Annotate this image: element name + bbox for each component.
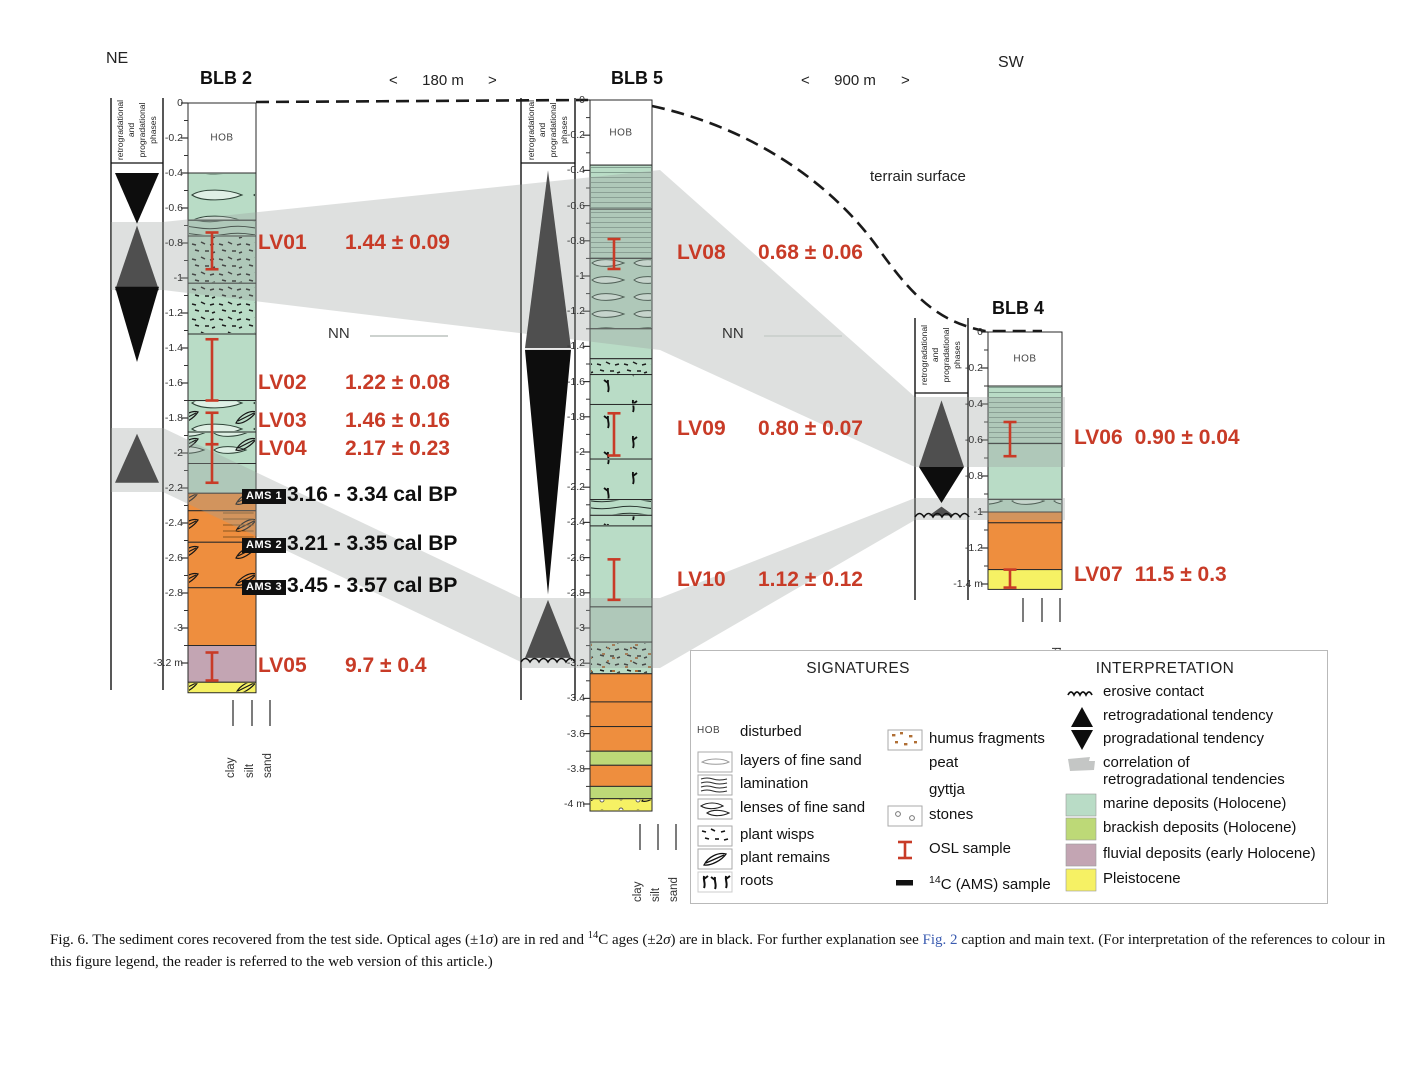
sample-age: 1.22 ± 0.08 bbox=[345, 371, 450, 395]
depth-tick-label: -3.6 bbox=[567, 728, 585, 740]
swatch-pleistocene-icon bbox=[1064, 868, 1100, 892]
signature-label: plant wisps bbox=[740, 826, 814, 843]
phase-axis-title: retrogradationalandprogradationalphases bbox=[917, 318, 965, 392]
signature-label: gyttja bbox=[929, 781, 965, 798]
core-title-BLB2: BLB 2 bbox=[200, 68, 252, 89]
depth-tick-label: -1.8 bbox=[567, 411, 585, 423]
depth-tick-label: -2.8 bbox=[567, 587, 585, 599]
osl-sample-label-LV06: LV060.90 ± 0.04 bbox=[1074, 426, 1240, 450]
osl-sample-label-LV01: LV011.44 ± 0.09 bbox=[258, 231, 450, 255]
depth-tick-label: -0.6 bbox=[165, 202, 183, 214]
wisps-icon bbox=[697, 824, 733, 848]
interpretation-label: fluvial deposits (early Holocene) bbox=[1103, 845, 1316, 862]
depth-tick-label: -0.8 bbox=[965, 470, 983, 482]
caption-text: ) are in red and bbox=[493, 932, 588, 948]
sample-id: LV04 bbox=[258, 437, 345, 461]
distance-label: 900 m bbox=[834, 72, 876, 89]
depth-tick-label: -2.6 bbox=[567, 552, 585, 564]
signature-label: layers of fine sand bbox=[740, 752, 862, 769]
distance-label: 180 m bbox=[422, 72, 464, 89]
depth-tick-label: -3.2 bbox=[567, 657, 585, 669]
depth-tick-label: -1.4 m bbox=[953, 578, 983, 590]
phase-axis-word: phases bbox=[952, 341, 963, 369]
osl-icon bbox=[887, 838, 923, 862]
nn-datum-line bbox=[764, 335, 842, 337]
sample-id: LV09 bbox=[677, 417, 758, 441]
depth-tick-label: -1.6 bbox=[567, 376, 585, 388]
phase-axis-word: phases bbox=[148, 116, 159, 144]
layers-fine-sand-icon bbox=[697, 750, 733, 774]
osl-sample-label-LV08: LV080.68 ± 0.06 bbox=[677, 241, 863, 265]
signature-label: lenses of fine sand bbox=[740, 799, 865, 816]
peat-icon bbox=[887, 752, 923, 776]
grain-label-sand: sand bbox=[262, 736, 274, 778]
ams-sample-age: 3.45 - 3.57 cal BP bbox=[287, 574, 457, 598]
signature-label: lamination bbox=[740, 775, 808, 792]
osl-sample-label-LV02: LV021.22 ± 0.08 bbox=[258, 371, 450, 395]
ams-sample-badge: AMS 3 bbox=[242, 580, 286, 595]
lamination-icon bbox=[697, 773, 733, 797]
swatch-marine-icon bbox=[1064, 793, 1100, 817]
depth-tick-label: -2.4 bbox=[567, 516, 585, 528]
roots-icon bbox=[697, 870, 733, 894]
depth-tick-label: -2 bbox=[174, 447, 183, 459]
sample-age: 0.90 ± 0.04 bbox=[1135, 426, 1240, 450]
depth-tick-label: -1.2 bbox=[965, 542, 983, 554]
interpretation-label: retrogradational tendency bbox=[1103, 707, 1273, 724]
osl-sample-label-LV03: LV031.46 ± 0.16 bbox=[258, 409, 450, 433]
depth-tick-label: -3.2 m bbox=[153, 657, 183, 669]
depth-tick-label: -1 bbox=[576, 270, 585, 282]
grain-label-silt: silt bbox=[650, 860, 662, 902]
sample-age: 2.17 ± 0.23 bbox=[345, 437, 450, 461]
interpretation-label: erosive contact bbox=[1103, 683, 1204, 700]
stones-icon bbox=[887, 804, 923, 828]
depth-tick-label: -2 bbox=[576, 446, 585, 458]
sample-id: LV05 bbox=[258, 654, 345, 678]
osl-sample-label-LV05: LV059.7 ± 0.4 bbox=[258, 654, 427, 678]
figure-caption: Fig. 6. The sediment cores recovered fro… bbox=[50, 928, 1390, 974]
osl-sample-label-LV07: LV0711.5 ± 0.3 bbox=[1074, 563, 1227, 587]
phase-axis-word: progradational bbox=[137, 103, 148, 158]
gyttja-icon bbox=[887, 779, 923, 803]
nn-datum-label: NN bbox=[328, 325, 350, 342]
erosive-icon bbox=[1064, 681, 1100, 705]
depth-tick-label: -0.6 bbox=[567, 200, 585, 212]
sample-id: LV07 bbox=[1074, 563, 1123, 587]
core-title-BLB4: BLB 4 bbox=[992, 298, 1044, 319]
interpretation-label: correlation ofretrogradational tendencie… bbox=[1103, 754, 1285, 788]
interpretation-label: brackish deposits (Holocene) bbox=[1103, 819, 1296, 836]
phase-axis-word: phases bbox=[559, 116, 570, 144]
fig2-link[interactable]: Fig. 2 bbox=[922, 932, 957, 948]
terrain-surface-label: terrain surface bbox=[870, 168, 966, 185]
osl-sample-label-LV09: LV090.80 ± 0.07 bbox=[677, 417, 863, 441]
signature-label: humus fragments bbox=[929, 730, 1045, 747]
sample-id: LV10 bbox=[677, 568, 758, 592]
signature-label: roots bbox=[740, 872, 773, 889]
depth-tick-label: -2.2 bbox=[165, 482, 183, 494]
depth-tick-label: -1.4 bbox=[165, 342, 183, 354]
ams-sample-age: 3.16 - 3.34 cal BP bbox=[287, 483, 457, 507]
hob-label: HOB bbox=[1013, 354, 1036, 365]
sample-age: 1.46 ± 0.16 bbox=[345, 409, 450, 433]
depth-tick-label: -2.8 bbox=[165, 587, 183, 599]
depth-tick-label: -1.2 bbox=[567, 305, 585, 317]
sample-age: 1.12 ± 0.12 bbox=[758, 568, 863, 592]
legend-title-signatures: SIGNATURES bbox=[806, 660, 910, 678]
depth-tick-label: -2.4 bbox=[165, 517, 183, 529]
grain-label-silt: silt bbox=[244, 736, 256, 778]
ams-sample-badge: AMS 1 bbox=[242, 489, 286, 504]
legend-title-interpretation: INTERPRETATION bbox=[1096, 660, 1235, 678]
signature-label: stones bbox=[929, 806, 973, 823]
distance-left-arrow: < bbox=[801, 72, 810, 89]
sample-id: LV02 bbox=[258, 371, 345, 395]
sample-id: LV08 bbox=[677, 241, 758, 265]
prograd-icon bbox=[1064, 728, 1100, 752]
depth-tick-label: -3.8 bbox=[567, 763, 585, 775]
caption-text: C ages (±2 bbox=[598, 932, 663, 948]
nn-datum-label: NN bbox=[722, 325, 744, 342]
sample-id: LV06 bbox=[1074, 426, 1123, 450]
interpretation-label: progradational tendency bbox=[1103, 730, 1264, 747]
depth-tick-label: -1 bbox=[174, 272, 183, 284]
compass-sw: SW bbox=[998, 54, 1024, 72]
phase-axis-word: and bbox=[537, 123, 548, 137]
leaf-icon bbox=[697, 847, 733, 871]
caption-text: Fig. 6. The sediment cores recovered fro… bbox=[50, 932, 486, 948]
signature-label: disturbed bbox=[740, 723, 802, 740]
sample-age: 0.68 ± 0.06 bbox=[758, 241, 863, 265]
compass-ne: NE bbox=[106, 50, 128, 68]
depth-tick-label: -1 bbox=[974, 506, 983, 518]
core-title-BLB5: BLB 5 bbox=[611, 68, 663, 89]
distance-right-arrow: > bbox=[488, 72, 497, 89]
sample-id: LV03 bbox=[258, 409, 345, 433]
signature-label: plant remains bbox=[740, 849, 830, 866]
phase-axis-word: progradational bbox=[941, 328, 952, 383]
phase-axis-word: retrogradational bbox=[526, 100, 537, 160]
depth-tick-label: 0 bbox=[977, 326, 983, 338]
hob-label: HOB bbox=[210, 133, 233, 144]
ams-sample-age: 3.21 - 3.35 cal BP bbox=[287, 532, 457, 556]
phase-axis-title: retrogradationalandprogradationalphases bbox=[524, 93, 572, 167]
figure-page: NE SW terrain surface HOB0-0.2-0.4-0.6-0… bbox=[0, 0, 1413, 1070]
signature-label: peat bbox=[929, 754, 958, 771]
correlation-icon bbox=[1064, 752, 1100, 776]
depth-tick-label: -2.2 bbox=[567, 481, 585, 493]
phase-axis-word: retrogradational bbox=[115, 100, 126, 160]
swatch-fluvial-icon bbox=[1064, 843, 1100, 867]
depth-tick-label: -0.2 bbox=[165, 132, 183, 144]
caption-text: σ bbox=[663, 932, 670, 948]
lenses-icon bbox=[697, 797, 733, 821]
grain-label-clay: clay bbox=[225, 736, 237, 778]
sample-age: 0.80 ± 0.07 bbox=[758, 417, 863, 441]
depth-tick-label: -1.2 bbox=[165, 307, 183, 319]
depth-tick-label: -0.4 bbox=[165, 167, 183, 179]
grain-label-clay: clay bbox=[632, 860, 644, 902]
depth-tick-label: -1.4 bbox=[567, 340, 585, 352]
humus-icon bbox=[887, 728, 923, 752]
interpretation-label: marine deposits (Holocene) bbox=[1103, 795, 1286, 812]
depth-tick-label: -3 bbox=[576, 622, 585, 634]
hob-icon: HOB bbox=[697, 725, 720, 736]
osl-sample-label-LV10: LV101.12 ± 0.12 bbox=[677, 568, 863, 592]
phase-axis-word: and bbox=[126, 123, 137, 137]
depth-tick-label: -0.2 bbox=[965, 362, 983, 374]
depth-tick-label: -1.8 bbox=[165, 412, 183, 424]
depth-tick-label: -2.6 bbox=[165, 552, 183, 564]
depth-tick-label: -0.8 bbox=[567, 235, 585, 247]
phase-axis-word: and bbox=[930, 348, 941, 362]
depth-tick-label: 0 bbox=[579, 94, 585, 106]
caption-text: 14 bbox=[588, 930, 599, 941]
depth-tick-label: -1.6 bbox=[165, 377, 183, 389]
depth-tick-label: -4 m bbox=[564, 798, 585, 810]
phase-axis-word: retrogradational bbox=[919, 325, 930, 385]
depth-tick-label: 0 bbox=[177, 97, 183, 109]
sample-age: 1.44 ± 0.09 bbox=[345, 231, 450, 255]
swatch-brackish-icon bbox=[1064, 817, 1100, 841]
signature-label: 14C (AMS) sample bbox=[929, 872, 1051, 893]
grain-label-sand: sand bbox=[668, 860, 680, 902]
depth-tick-label: -0.4 bbox=[965, 398, 983, 410]
osl-sample-label-LV04: LV042.17 ± 0.23 bbox=[258, 437, 450, 461]
nn-datum-line bbox=[370, 335, 448, 337]
phase-axis-title: retrogradationalandprogradationalphases bbox=[113, 93, 161, 167]
depth-tick-label: -0.8 bbox=[165, 237, 183, 249]
depth-tick-label: -0.6 bbox=[965, 434, 983, 446]
ams-sample-badge: AMS 2 bbox=[242, 538, 286, 553]
phase-axis-word: progradational bbox=[548, 103, 559, 158]
depth-tick-label: -3 bbox=[174, 622, 183, 634]
caption-text: ) are in black. For further explanation … bbox=[671, 932, 923, 948]
depth-tick-label: -3.4 bbox=[567, 692, 585, 704]
interpretation-label: Pleistocene bbox=[1103, 870, 1181, 887]
c14-icon bbox=[887, 870, 923, 894]
retro-icon bbox=[1064, 705, 1100, 729]
distance-right-arrow: > bbox=[901, 72, 910, 89]
label-layer: NE SW terrain surface HOB0-0.2-0.4-0.6-0… bbox=[0, 0, 1413, 1070]
hob-label: HOB bbox=[609, 127, 632, 138]
sample-id: LV01 bbox=[258, 231, 345, 255]
signature-label: OSL sample bbox=[929, 840, 1011, 857]
distance-left-arrow: < bbox=[389, 72, 398, 89]
sample-age: 9.7 ± 0.4 bbox=[345, 654, 427, 678]
sample-age: 11.5 ± 0.3 bbox=[1135, 563, 1227, 587]
